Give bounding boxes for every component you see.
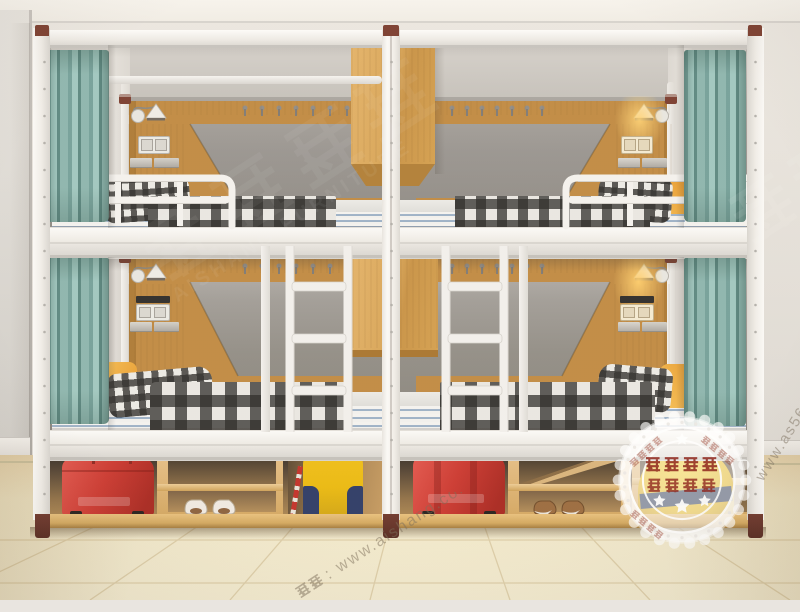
svg-text:: www.aishang.com: : www.aishang.com (322, 492, 475, 583)
